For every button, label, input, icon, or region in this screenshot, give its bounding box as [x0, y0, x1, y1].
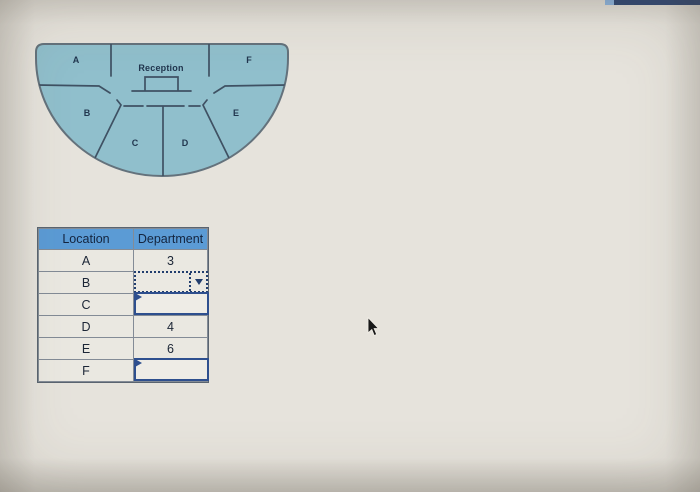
- department-cell-e[interactable]: 6: [134, 338, 208, 360]
- floor-plan-diagram: Reception A B C D E F: [33, 41, 291, 179]
- location-cell-d: D: [39, 316, 134, 338]
- location-department-table: Location Department A 3 B C: [38, 228, 208, 382]
- room-label-f: F: [246, 55, 252, 65]
- dropdown-arrow-button-b[interactable]: [189, 273, 206, 291]
- department-cell-d[interactable]: 4: [134, 316, 208, 338]
- column-header-department: Department: [134, 229, 208, 250]
- column-header-location: Location: [39, 229, 134, 250]
- department-cell-b: [134, 272, 208, 294]
- department-dropdown-b[interactable]: [134, 271, 208, 293]
- top-window-edge-accent: [605, 0, 614, 5]
- table-row-f: F: [39, 360, 208, 382]
- table-row-a: A 3: [39, 250, 208, 272]
- room-label-d: D: [182, 138, 189, 148]
- table-row-c: C: [39, 294, 208, 316]
- table-row-b: B: [39, 272, 208, 294]
- department-cell-a[interactable]: 3: [134, 250, 208, 272]
- top-window-edge: [605, 0, 700, 5]
- department-dropdown-c[interactable]: [134, 292, 209, 315]
- location-cell-f: F: [39, 360, 134, 382]
- location-cell-c: C: [39, 294, 134, 316]
- table-row-e: E 6: [39, 338, 208, 360]
- reception-label: Reception: [138, 63, 183, 73]
- location-cell-b: B: [39, 272, 134, 294]
- dropdown-corner-marker-icon: [135, 359, 142, 367]
- chevron-down-icon: [195, 279, 203, 285]
- room-label-b: B: [84, 108, 91, 118]
- room-label-c: C: [132, 138, 139, 148]
- room-label-a: A: [73, 55, 80, 65]
- department-cell-f: [134, 360, 208, 382]
- room-label-e: E: [233, 108, 239, 118]
- mouse-cursor-icon: [367, 317, 381, 339]
- location-cell-e: E: [39, 338, 134, 360]
- table-header-row: Location Department: [39, 229, 208, 250]
- department-dropdown-f[interactable]: [134, 358, 209, 381]
- location-cell-a: A: [39, 250, 134, 272]
- table-row-d: D 4: [39, 316, 208, 338]
- dropdown-corner-marker-icon: [135, 293, 142, 301]
- department-cell-c: [134, 294, 208, 316]
- screen: Reception A B C D E F Location Departmen…: [0, 0, 700, 492]
